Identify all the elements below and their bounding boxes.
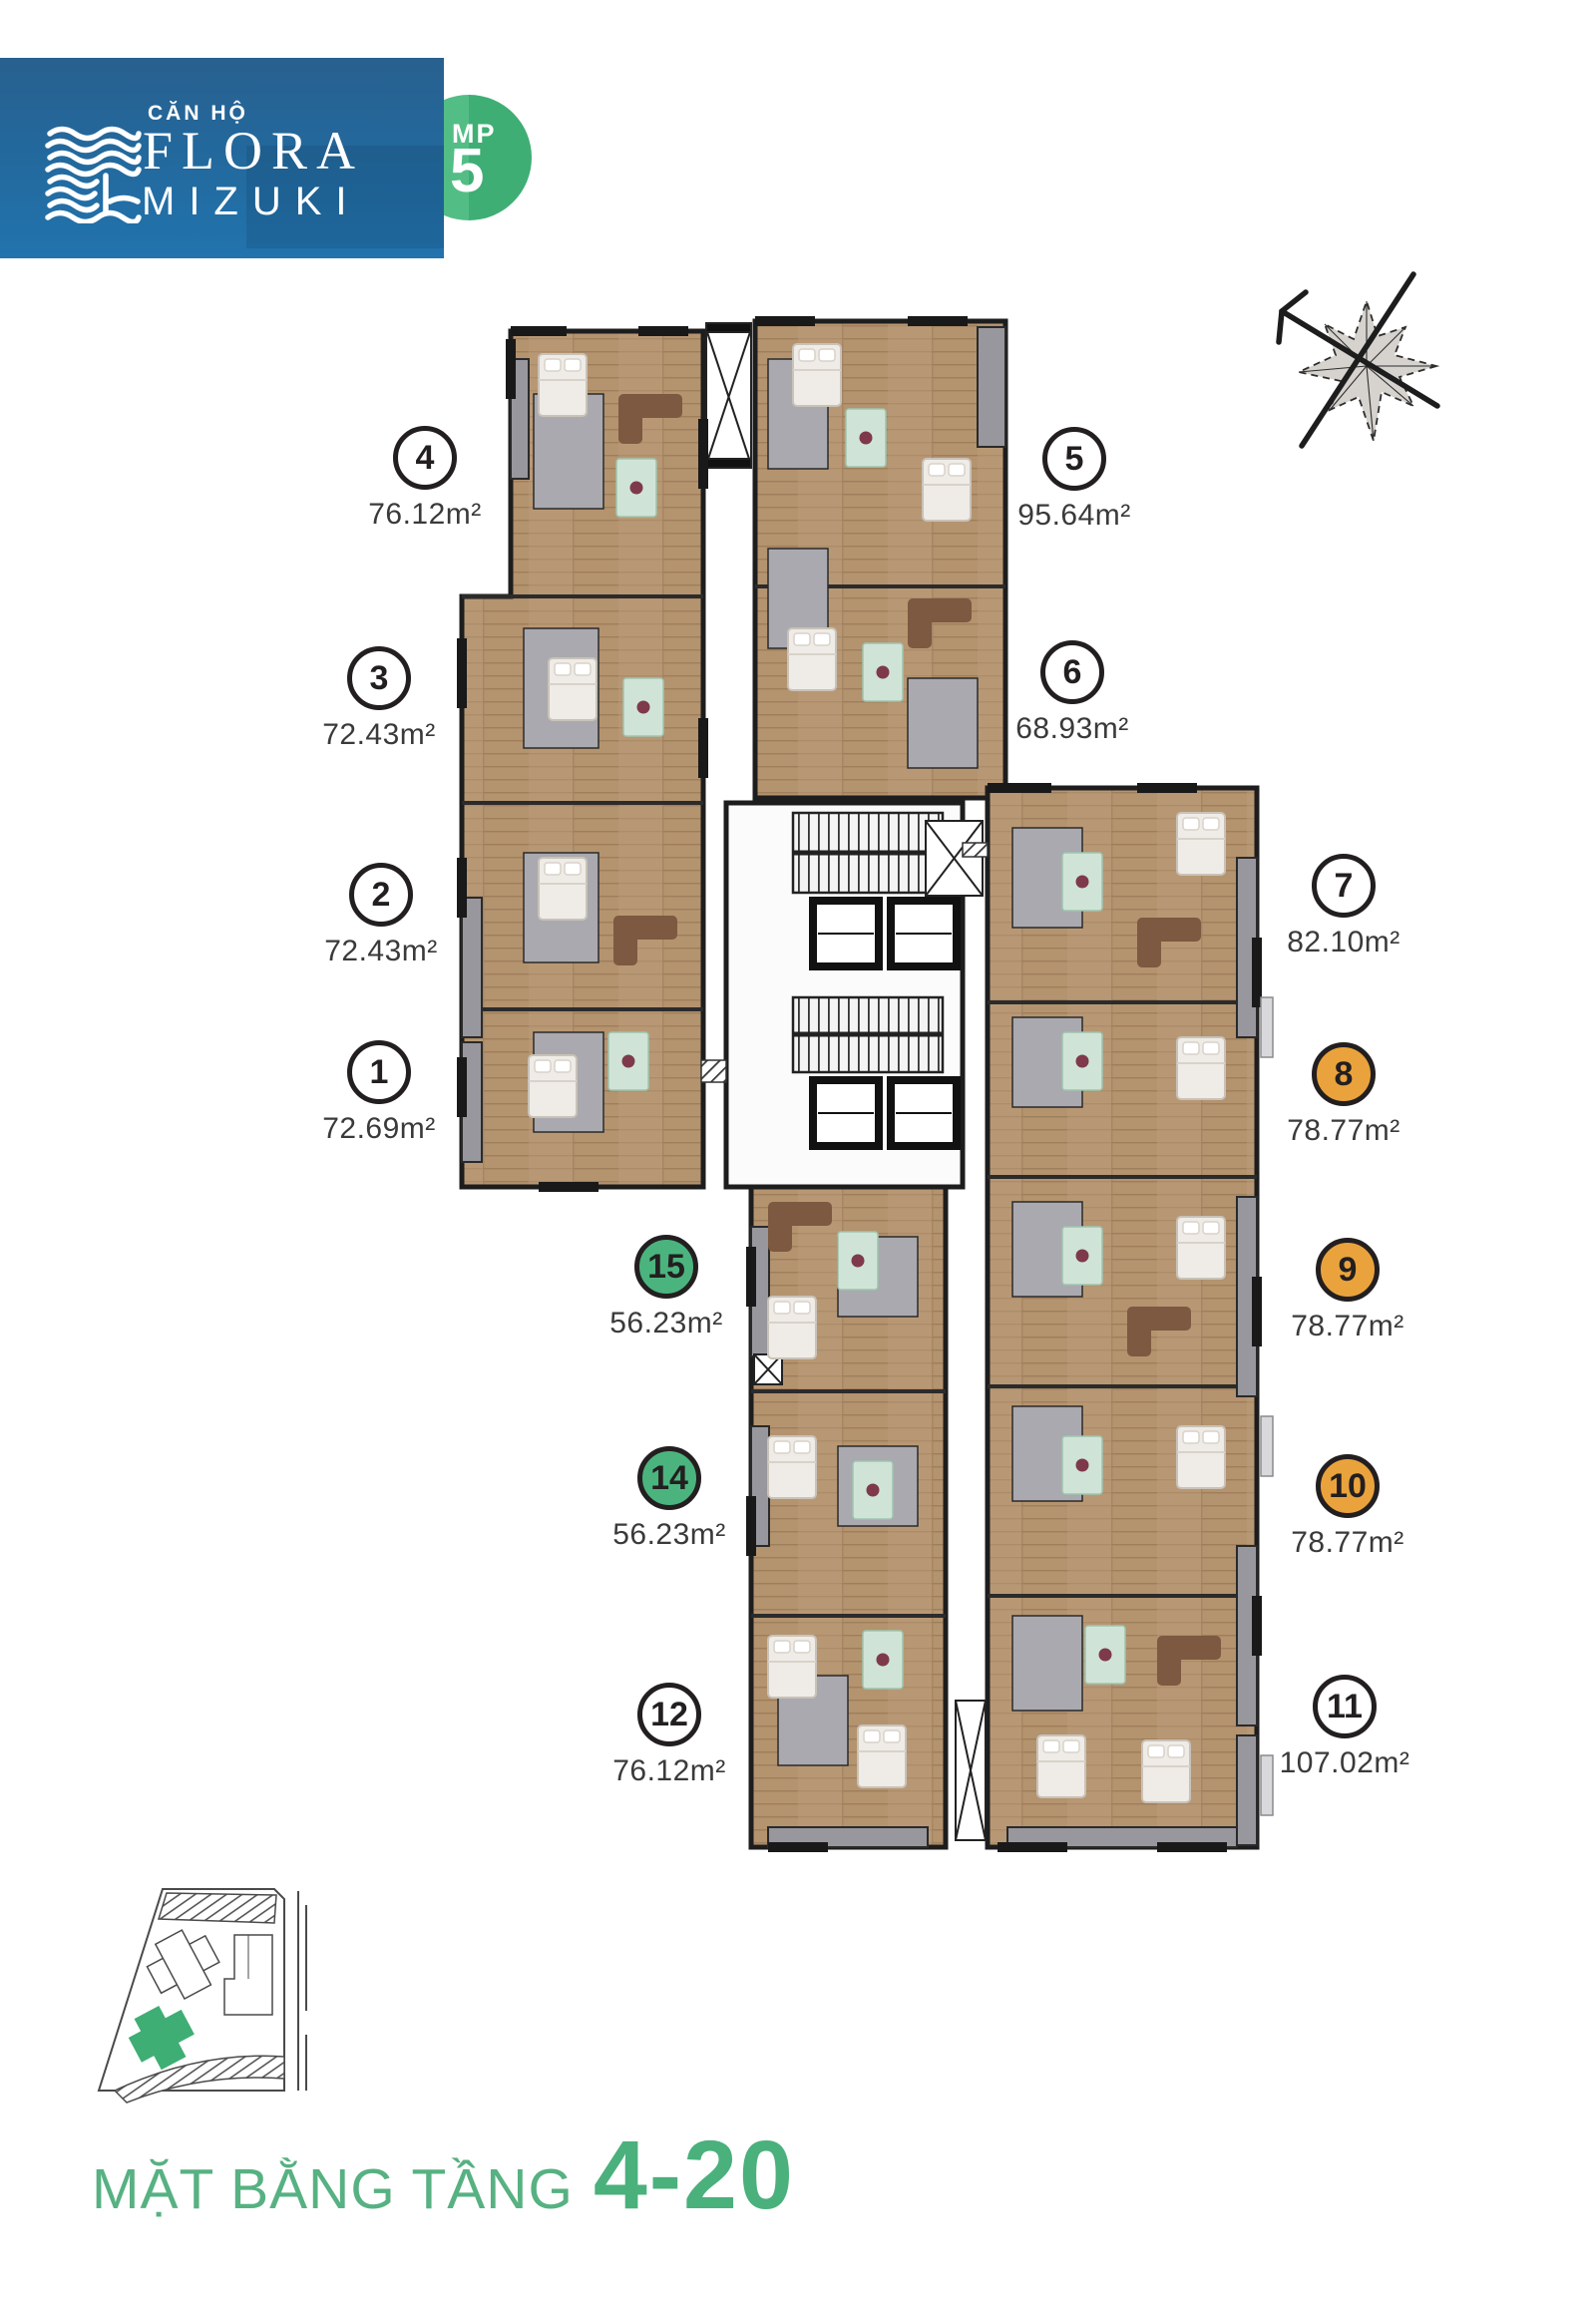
page-title: MẶT BẰNG TẦNG 4-20	[92, 2136, 795, 2222]
unit-number-badge: 2	[349, 863, 413, 927]
logo-title-flora: FLORA	[143, 120, 364, 182]
unit-area-text: 82.10m²	[1254, 926, 1433, 959]
unit-label-2: 272.43m²	[291, 863, 471, 968]
unit-area-text: 78.77m²	[1254, 1114, 1433, 1148]
unit-number-badge: 5	[1042, 427, 1106, 491]
brand-logo: CĂN HỘ FLORA MIZUKI	[0, 58, 444, 258]
unit-label-3: 372.43m²	[289, 646, 469, 752]
unit-number-badge: 14	[637, 1446, 701, 1510]
unit-label-4: 476.12m²	[335, 426, 515, 532]
phase-badge-number: 5	[450, 141, 484, 202]
unit-number-badge: 9	[1316, 1238, 1380, 1302]
unit-label-5: 595.64m²	[985, 427, 1164, 533]
site-location-map	[85, 1883, 324, 2132]
logo-title-mizuki: MIZUKI	[142, 180, 361, 224]
unit-area-text: 76.12m²	[335, 498, 515, 532]
unit-label-14: 1456.23m²	[580, 1446, 759, 1552]
unit-label-12: 1276.12m²	[580, 1683, 759, 1788]
unit-area-text: 72.69m²	[289, 1112, 469, 1146]
unit-label-6: 668.93m²	[983, 640, 1162, 746]
unit-label-10: 1078.77m²	[1258, 1454, 1437, 1560]
unit-number-badge: 15	[634, 1235, 698, 1299]
wave-logo-icon	[44, 124, 144, 223]
unit-label-7: 782.10m²	[1254, 854, 1433, 959]
unit-number-badge: 4	[393, 426, 457, 490]
unit-area-text: 72.43m²	[291, 935, 471, 968]
unit-area-text: 78.77m²	[1258, 1310, 1437, 1343]
unit-number-badge: 12	[637, 1683, 701, 1746]
unit-area-text: 72.43m²	[289, 718, 469, 752]
unit-label-9: 978.77m²	[1258, 1238, 1437, 1343]
floor-plan-page: MP 5 CĂN HỘ FLORA MIZUKI	[0, 0, 1596, 2297]
unit-label-11: 11107.02m²	[1255, 1675, 1434, 1780]
unit-area-text: 78.77m²	[1258, 1526, 1437, 1560]
page-title-floor-range: 4-20	[594, 2136, 795, 2214]
unit-area-text: 68.93m²	[983, 712, 1162, 746]
unit-label-1: 172.69m²	[289, 1040, 469, 1146]
unit-area-text: 107.02m²	[1255, 1746, 1434, 1780]
unit-number-badge: 6	[1040, 640, 1104, 704]
unit-area-text: 76.12m²	[580, 1754, 759, 1788]
roads	[298, 1891, 306, 2091]
unit-area-text: 56.23m²	[577, 1307, 756, 1340]
unit-area-text: 56.23m²	[580, 1518, 759, 1552]
floor-plan-drawing	[439, 299, 1297, 1875]
unit-number-badge: 3	[347, 646, 411, 710]
unit-number-badge: 8	[1312, 1042, 1376, 1106]
unit-number-badge: 11	[1313, 1675, 1377, 1738]
unit-number-badge: 7	[1312, 854, 1376, 918]
unit-area-text: 95.64m²	[985, 499, 1164, 533]
unit-number-badge: 1	[347, 1040, 411, 1104]
unit-label-8: 878.77m²	[1254, 1042, 1433, 1148]
page-title-prefix: MẶT BẰNG TẦNG	[92, 2156, 574, 2222]
unit-number-badge: 10	[1316, 1454, 1380, 1518]
unit-label-15: 1556.23m²	[577, 1235, 756, 1340]
